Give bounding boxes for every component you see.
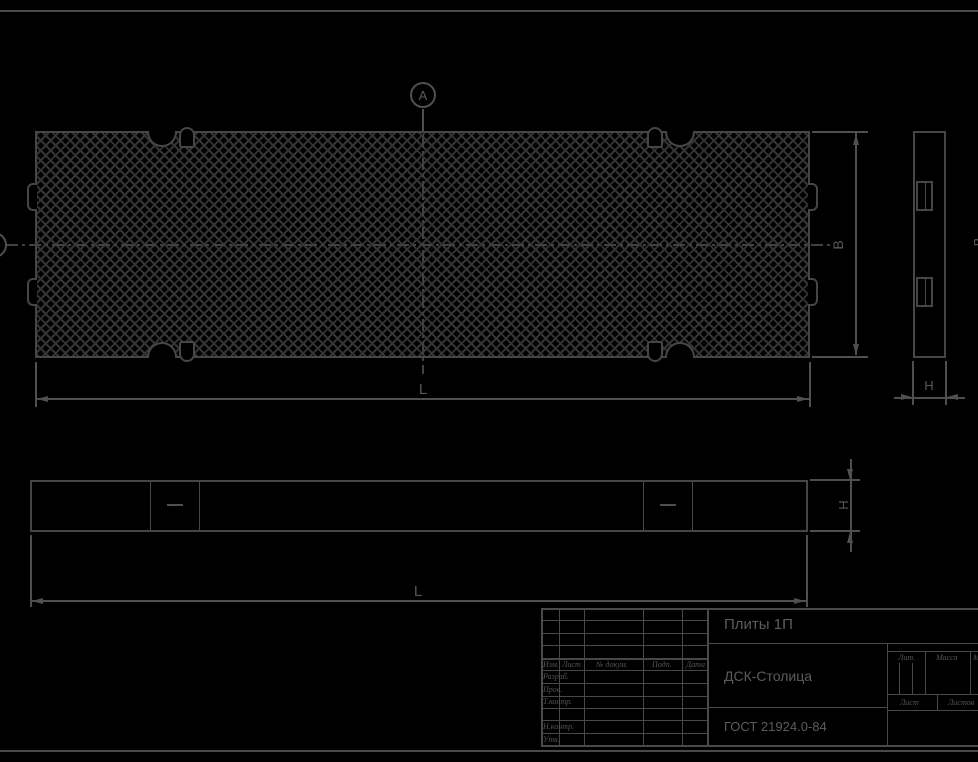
- dim-line-l-plan: [36, 398, 810, 400]
- label-doc: № докум.: [596, 661, 628, 669]
- lifting-notch: [665, 342, 695, 358]
- view-marker-a-circle: А: [410, 82, 436, 108]
- title-block-line: [541, 608, 978, 610]
- arrowhead: [847, 469, 853, 480]
- arrowhead: [37, 396, 48, 402]
- side-tab: [808, 278, 818, 306]
- label-utv: Утв.: [543, 736, 560, 744]
- dim-label-l-plan: L: [413, 380, 433, 398]
- title-block-line: [925, 651, 926, 694]
- side-view-joint-line: [643, 482, 644, 530]
- side-tab: [27, 183, 37, 211]
- lifting-notch: [147, 131, 177, 147]
- ext-line: [809, 362, 811, 407]
- label-sheet: Лист: [900, 699, 919, 707]
- side-view-dash: [660, 504, 676, 506]
- title-block-line: [707, 608, 709, 747]
- label-list: Лист: [562, 661, 581, 669]
- label-massa: Масса: [936, 654, 957, 662]
- title-block-line: [937, 694, 938, 710]
- end-view-tab: [916, 277, 933, 307]
- dim-label-l-side: L: [408, 582, 428, 600]
- label-tkontr: Т.контр.: [543, 698, 572, 706]
- view-marker-left-circle: [0, 232, 7, 258]
- arrowhead: [853, 344, 859, 355]
- lifting-loop: [179, 127, 195, 148]
- arrowhead: [794, 598, 805, 604]
- title-block-line: [682, 608, 683, 745]
- end-view: [913, 131, 946, 358]
- end-view-tab-line: [925, 279, 926, 305]
- label-date: Дата: [686, 661, 705, 669]
- company-name: ДСК-Столица: [724, 668, 812, 684]
- side-tab: [27, 278, 37, 306]
- side-view-dash: [167, 504, 183, 506]
- label-razrab: Разраб.: [543, 673, 569, 681]
- side-view-joint-line: [150, 482, 151, 530]
- ext-line: [812, 356, 868, 358]
- side-view-joint-line: [199, 482, 200, 530]
- lifting-notch: [665, 131, 695, 147]
- product-title: Плиты 1П: [724, 616, 793, 633]
- title-block-line: [899, 663, 900, 694]
- title-block-line: [643, 608, 644, 745]
- lifting-loop: [179, 341, 195, 362]
- dim-label-b-partial: В: [967, 231, 978, 253]
- title-block-line: [707, 707, 887, 708]
- engineering-drawing-sheet: { "dims": { "B": "В", "L": "L", "H": "H"…: [0, 0, 978, 762]
- title-block-line: [887, 710, 978, 711]
- standard-number: ГОСТ 21924.0-84: [724, 719, 827, 734]
- arrowhead: [853, 134, 859, 145]
- title-block-line: [912, 663, 913, 694]
- title-block-line: [970, 651, 971, 694]
- dim-label-h-end: H: [919, 376, 939, 394]
- title-block-line: [887, 694, 978, 695]
- lifting-loop: [647, 127, 663, 148]
- side-view-joint-line: [692, 482, 693, 530]
- dim-label-h-side: H: [832, 494, 854, 516]
- title-block-line: [707, 643, 978, 644]
- dim-label-b: В: [826, 233, 850, 257]
- side-view: [30, 480, 808, 532]
- end-view-tab: [916, 181, 933, 211]
- arrowhead: [797, 396, 808, 402]
- frame-top-line: [0, 10, 978, 12]
- lifting-loop: [647, 341, 663, 362]
- label-sheets: Листов: [948, 699, 974, 707]
- view-marker-a-leader: [422, 109, 424, 131]
- ext-line: [806, 535, 808, 607]
- end-view-tab-line: [925, 183, 926, 209]
- title-block-line: [584, 608, 585, 745]
- vertical-centerline: [422, 112, 424, 374]
- view-marker-a-label: А: [419, 88, 428, 103]
- dim-line-b: [855, 133, 857, 355]
- lifting-notch: [147, 342, 177, 358]
- label-izm: Изм.: [543, 661, 559, 669]
- arrowhead: [901, 394, 912, 400]
- label-prov: Пров.: [543, 686, 562, 694]
- side-tab: [808, 183, 818, 211]
- horizontal-centerline: [6, 244, 832, 246]
- title-block-line: [887, 651, 978, 652]
- arrowhead: [947, 394, 958, 400]
- label-masshtab: Масштаб: [973, 654, 978, 662]
- label-lit: Лит.: [898, 654, 915, 662]
- ext-line: [812, 131, 868, 133]
- arrowhead: [32, 598, 43, 604]
- title-block-line: [541, 745, 978, 747]
- arrowhead: [847, 532, 853, 543]
- frame-bottom-line: [0, 750, 978, 752]
- label-sign: Подп.: [652, 661, 672, 669]
- ext-line: [30, 535, 32, 607]
- dim-line-l-side: [31, 600, 807, 602]
- label-nkontr: Н.контр.: [543, 723, 574, 731]
